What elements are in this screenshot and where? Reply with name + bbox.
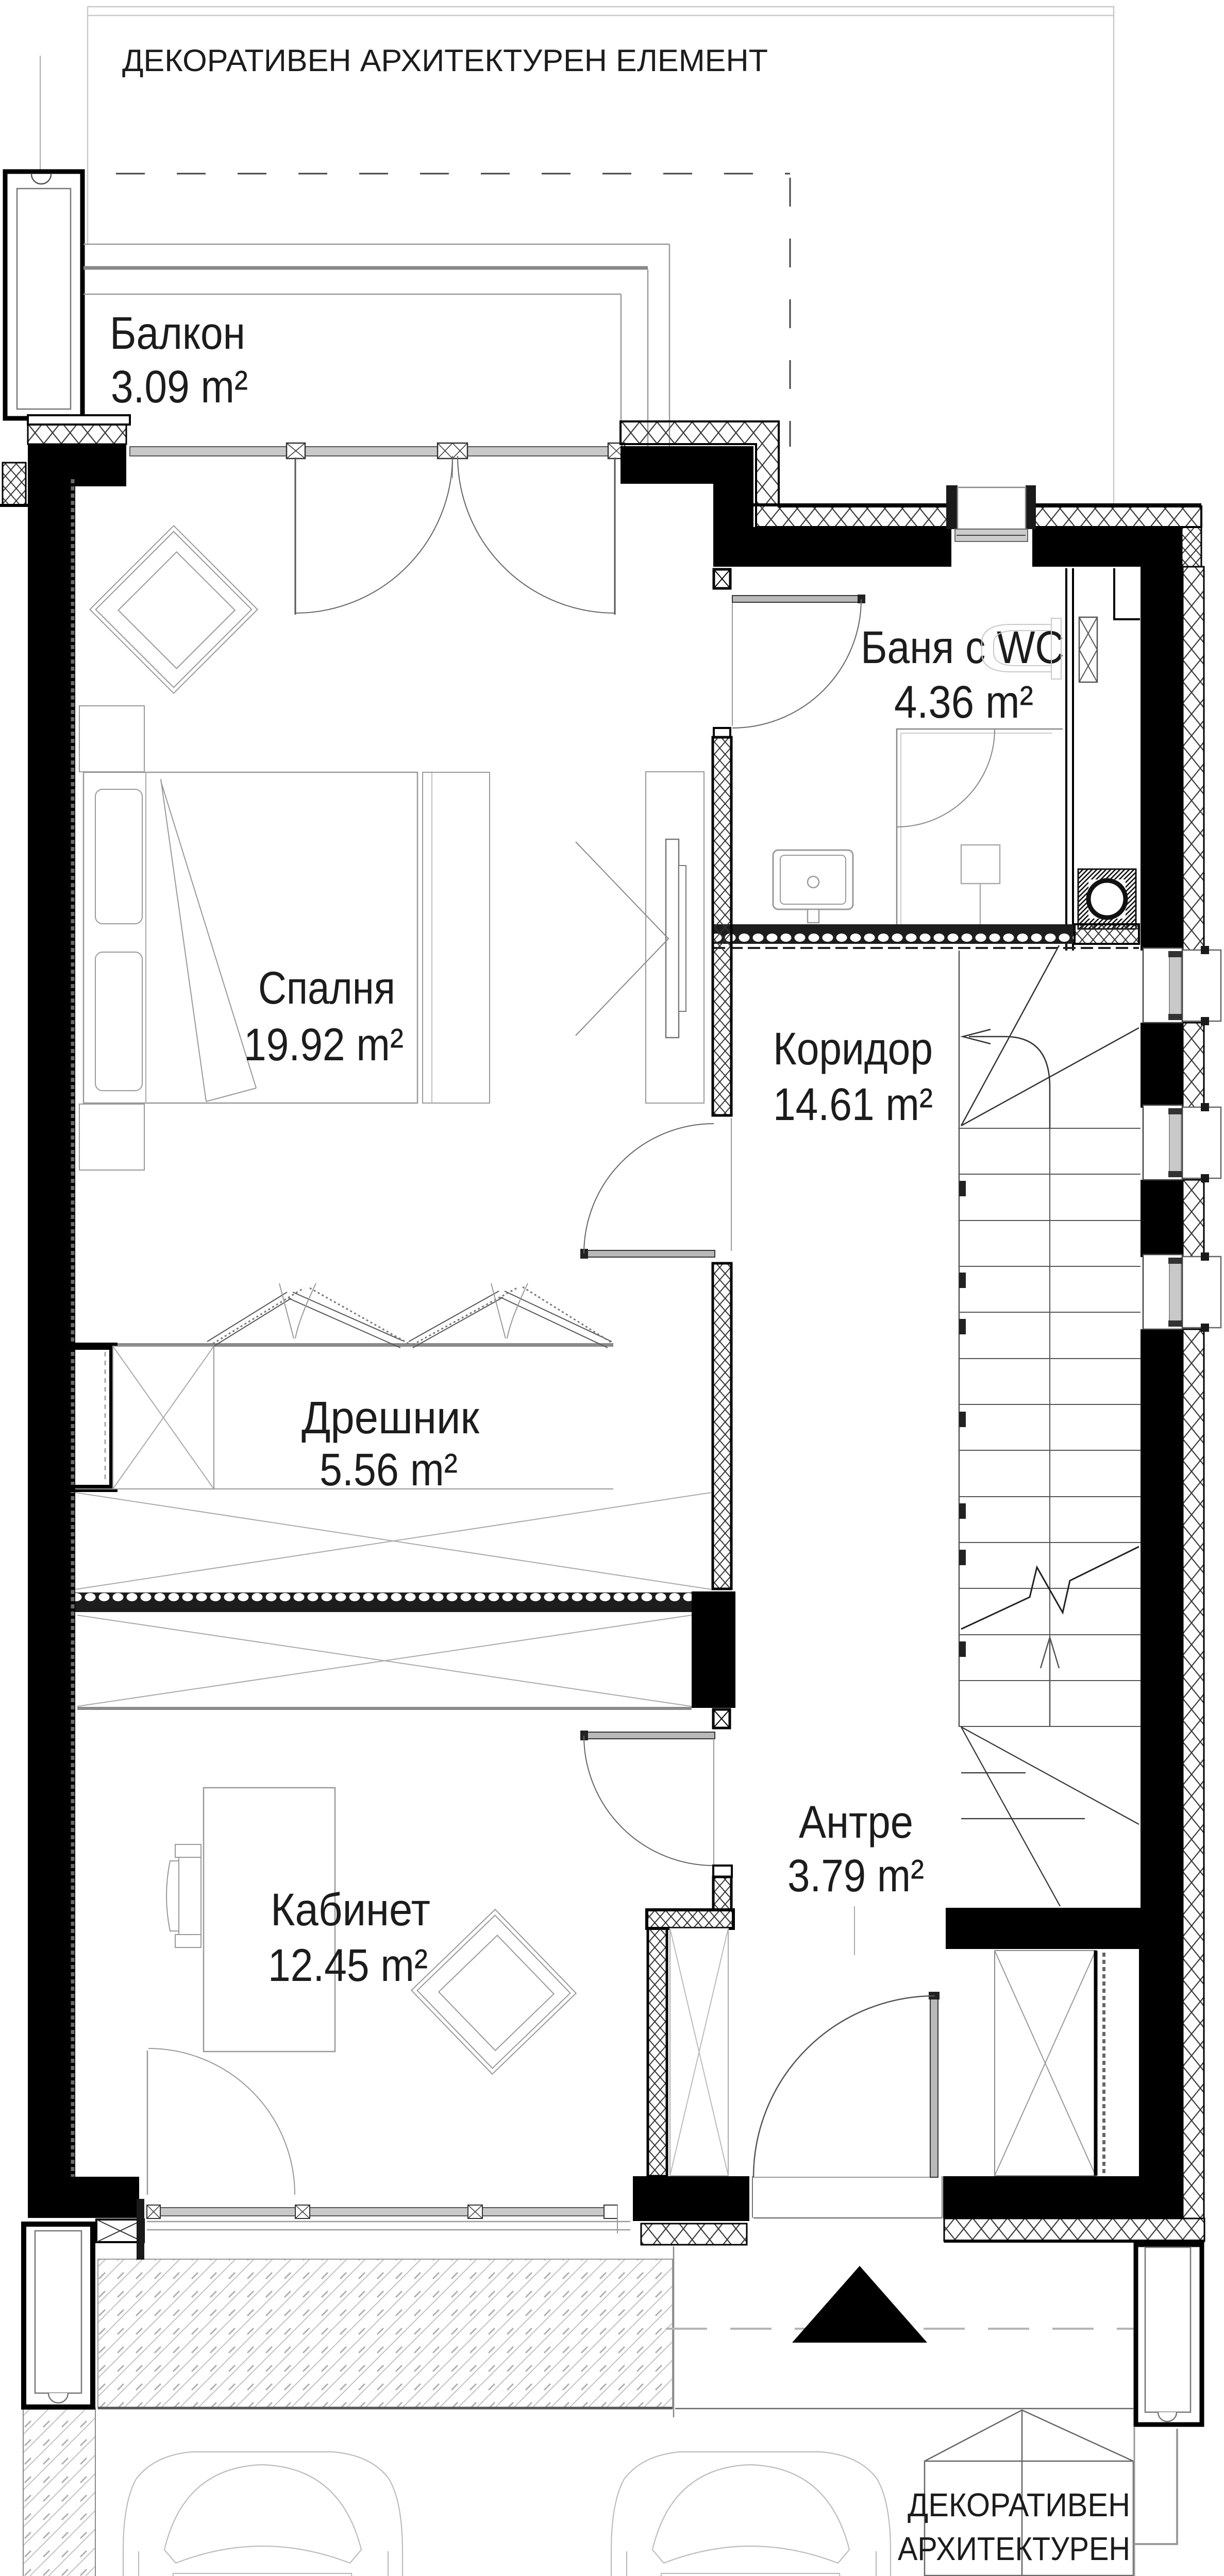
svg-text:ЕЛЕМЕНТ: ЕЛЕМЕНТ bbox=[985, 2571, 1130, 2576]
svg-text:4.36 m²: 4.36 m² bbox=[894, 676, 1033, 727]
svg-text:5.56 m²: 5.56 m² bbox=[320, 1444, 458, 1495]
svg-text:Балкон: Балкон bbox=[110, 307, 245, 359]
svg-text:ДЕКОРАТИВЕН: ДЕКОРАТИВЕН bbox=[908, 2486, 1130, 2523]
svg-text:14.61 m²: 14.61 m² bbox=[773, 1078, 933, 1130]
svg-text:3.79 m²: 3.79 m² bbox=[787, 1850, 924, 1901]
svg-text:АРХИТЕКТУРЕН: АРХИТЕКТУРЕН bbox=[898, 2530, 1130, 2567]
svg-text:ДЕКОРАТИВЕН АРХИТЕКТУРЕН ЕЛЕ: ДЕКОРАТИВЕН АРХИТЕКТУРЕН ЕЛЕМЕНТ bbox=[122, 43, 768, 78]
svg-text:Дрешник: Дрешник bbox=[301, 1392, 480, 1443]
svg-text:19.92 m²: 19.92 m² bbox=[244, 1019, 404, 1070]
svg-text:Коридор: Коридор bbox=[773, 1023, 933, 1074]
svg-text:3.09 m²: 3.09 m² bbox=[111, 361, 248, 412]
svg-text:Спалня: Спалня bbox=[258, 962, 395, 1013]
svg-text:12.45 m²: 12.45 m² bbox=[268, 1939, 428, 1991]
svg-text:Антре: Антре bbox=[799, 1796, 913, 1848]
svg-text:Кабинет: Кабинет bbox=[271, 1884, 430, 1935]
